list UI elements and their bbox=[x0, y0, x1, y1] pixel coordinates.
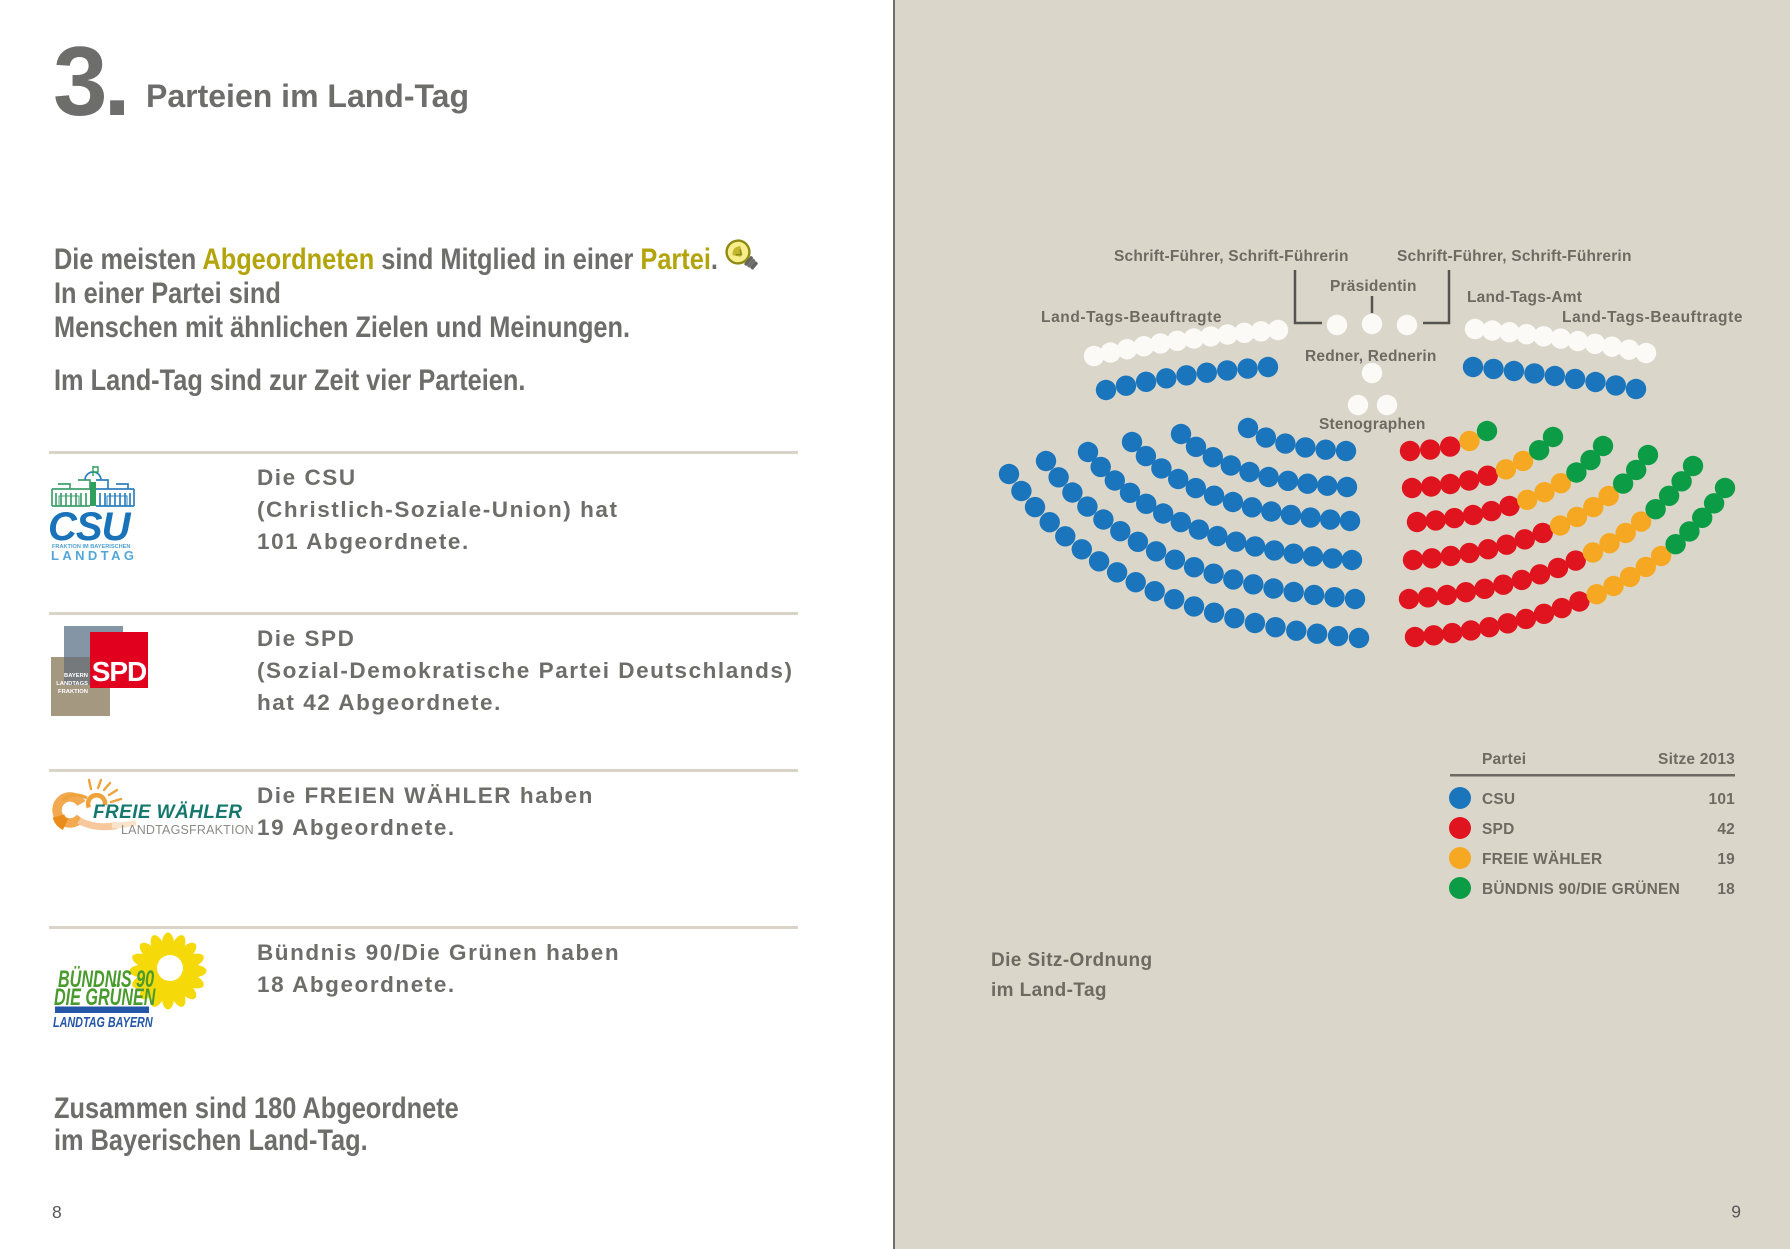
svg-text:FREIE WÄHLER: FREIE WÄHLER bbox=[93, 802, 242, 823]
svg-text:SPD: SPD bbox=[1482, 821, 1514, 838]
svg-text:FRAKTION: FRAKTION bbox=[58, 689, 88, 695]
svg-text:101: 101 bbox=[1709, 791, 1736, 808]
svg-text:LANDTAG BAYERN: LANDTAG BAYERN bbox=[53, 1013, 153, 1030]
svg-text:im Land-Tag: im Land-Tag bbox=[991, 980, 1107, 1001]
svg-text:CSU: CSU bbox=[1482, 791, 1515, 808]
svg-text:42: 42 bbox=[1717, 821, 1735, 838]
svg-text:BÜNDNIS 90/DIE GRÜNEN: BÜNDNIS 90/DIE GRÜNEN bbox=[1482, 881, 1680, 898]
svg-text:BAYERN: BAYERN bbox=[64, 673, 88, 679]
svg-text:Schrift-Führer, Schrift-Führer: Schrift-Führer, Schrift-Führerin bbox=[1397, 248, 1632, 265]
svg-text:Schrift-Führer, Schrift-Führer: Schrift-Führer, Schrift-Führerin bbox=[1114, 248, 1349, 265]
svg-text:Land-Tags-Amt: Land-Tags-Amt bbox=[1467, 289, 1582, 306]
svg-text:Die Sitz-Ordnung: Die Sitz-Ordnung bbox=[991, 950, 1153, 971]
svg-text:9: 9 bbox=[1731, 1202, 1741, 1222]
svg-text:Stenographen: Stenographen bbox=[1319, 416, 1426, 433]
svg-text:18: 18 bbox=[1717, 881, 1735, 898]
svg-text:Partei: Partei bbox=[1482, 751, 1526, 768]
svg-text:SPD: SPD bbox=[92, 656, 147, 687]
svg-text:19: 19 bbox=[1717, 851, 1735, 868]
svg-text:FREIE WÄHLER: FREIE WÄHLER bbox=[1482, 851, 1602, 868]
svg-text:Sitze 2013: Sitze 2013 bbox=[1658, 751, 1735, 768]
svg-text:Land-Tags-Beauftragte: Land-Tags-Beauftragte bbox=[1041, 309, 1222, 326]
svg-text:LANDTAG: LANDTAG bbox=[51, 548, 136, 561]
svg-text:LANDTAGS: LANDTAGS bbox=[56, 681, 88, 687]
svg-text:Präsidentin: Präsidentin bbox=[1330, 278, 1417, 295]
svg-text:LANDTAGSFRAKTION: LANDTAGSFRAKTION bbox=[121, 823, 254, 837]
svg-text:CSU: CSU bbox=[50, 505, 132, 549]
svg-text:Redner, Rednerin: Redner, Rednerin bbox=[1305, 348, 1437, 365]
svg-text:Land-Tags-Beauftragte: Land-Tags-Beauftragte bbox=[1562, 309, 1743, 326]
